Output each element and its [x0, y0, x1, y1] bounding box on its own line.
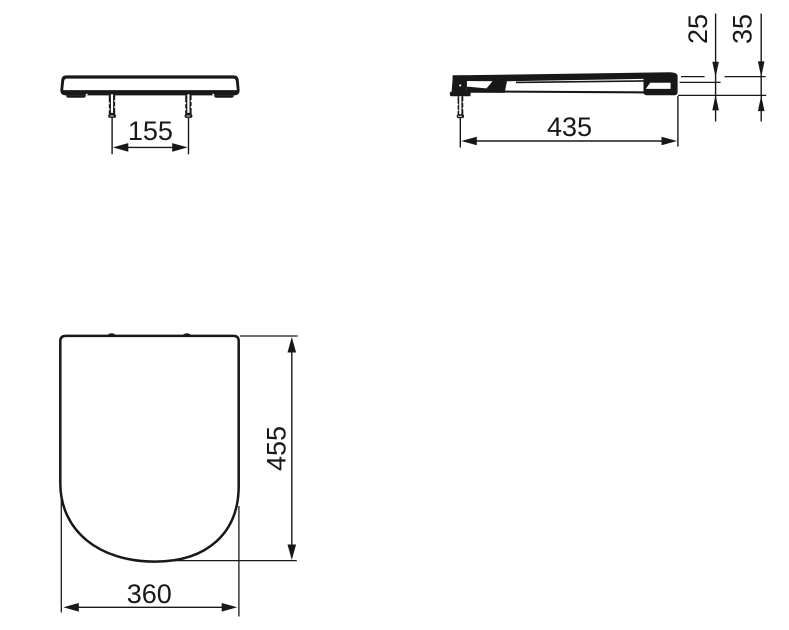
svg-text:360: 360: [127, 579, 172, 609]
svg-text:435: 435: [547, 112, 592, 142]
svg-text:155: 155: [128, 116, 173, 146]
svg-text:25: 25: [683, 14, 713, 44]
svg-text:35: 35: [727, 14, 757, 44]
svg-text:455: 455: [261, 426, 291, 471]
